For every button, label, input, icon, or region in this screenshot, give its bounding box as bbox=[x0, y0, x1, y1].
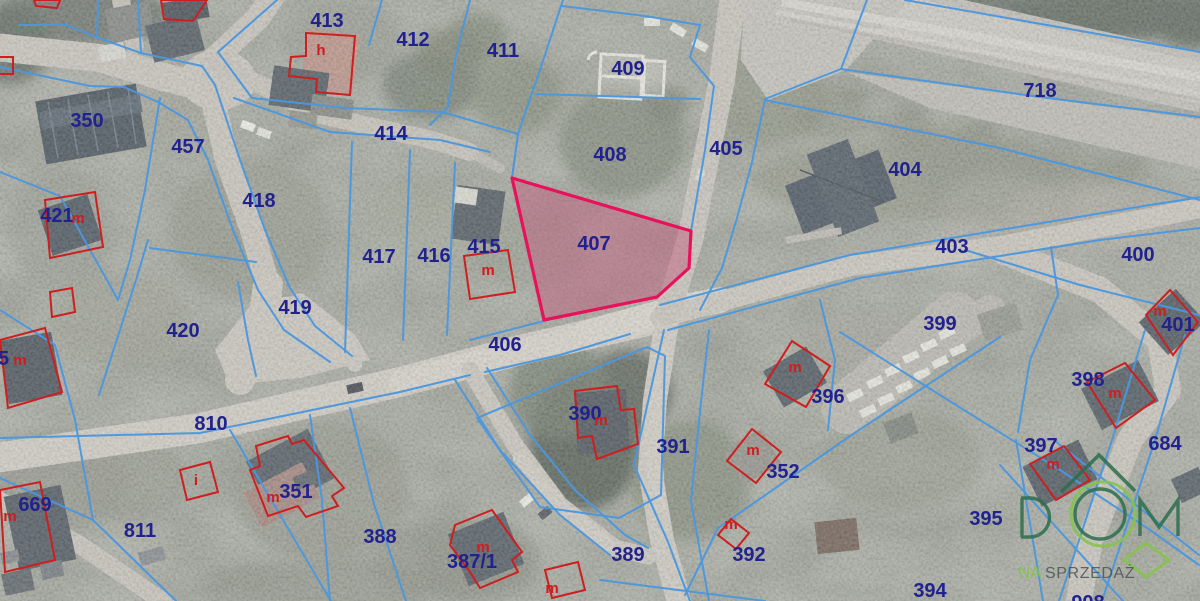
svg-text:810: 810 bbox=[194, 413, 227, 435]
svg-text:m: m bbox=[1108, 385, 1121, 402]
svg-text:389: 389 bbox=[611, 544, 644, 566]
svg-text:m: m bbox=[1046, 456, 1059, 473]
svg-text:398: 398 bbox=[1071, 369, 1104, 391]
svg-text:NA: NA bbox=[1018, 563, 1042, 582]
svg-text:m: m bbox=[746, 442, 759, 459]
svg-text:h: h bbox=[316, 42, 325, 59]
svg-text:669: 669 bbox=[18, 494, 51, 516]
svg-text:352: 352 bbox=[766, 461, 799, 483]
svg-text:413: 413 bbox=[310, 10, 343, 32]
svg-text:m: m bbox=[1153, 303, 1166, 320]
svg-text:391: 391 bbox=[656, 436, 689, 458]
svg-text:419: 419 bbox=[278, 297, 311, 319]
svg-text:396: 396 bbox=[811, 386, 844, 408]
svg-text:m: m bbox=[3, 508, 16, 525]
svg-text:400: 400 bbox=[1121, 244, 1154, 266]
svg-text:908: 908 bbox=[1071, 592, 1104, 601]
svg-text:m: m bbox=[266, 489, 279, 506]
svg-text:m: m bbox=[788, 359, 801, 376]
svg-text:m: m bbox=[594, 412, 607, 429]
svg-text:420: 420 bbox=[166, 320, 199, 342]
svg-text:457: 457 bbox=[171, 136, 204, 158]
svg-text:351: 351 bbox=[279, 481, 312, 503]
svg-text:811: 811 bbox=[124, 520, 156, 542]
svg-text:421: 421 bbox=[40, 205, 73, 227]
svg-text:392: 392 bbox=[732, 544, 765, 566]
svg-text:m: m bbox=[71, 210, 84, 227]
svg-text:SPRZEDAŻ: SPRZEDAŻ bbox=[1045, 563, 1135, 582]
svg-text:i: i bbox=[194, 472, 198, 489]
svg-text:684: 684 bbox=[1148, 433, 1182, 455]
svg-text:718: 718 bbox=[1023, 80, 1056, 102]
svg-text:m: m bbox=[476, 539, 489, 556]
svg-text:399: 399 bbox=[923, 313, 956, 335]
svg-text:416: 416 bbox=[417, 245, 450, 267]
svg-text:417: 417 bbox=[362, 246, 395, 268]
svg-text:395: 395 bbox=[969, 508, 1002, 530]
svg-text:403: 403 bbox=[935, 236, 968, 258]
svg-text:75: 75 bbox=[0, 348, 9, 370]
svg-text:m: m bbox=[481, 262, 494, 279]
svg-text:404: 404 bbox=[888, 159, 922, 181]
svg-text:418: 418 bbox=[242, 190, 275, 212]
svg-text:394: 394 bbox=[913, 580, 947, 601]
svg-text:405: 405 bbox=[709, 138, 742, 160]
svg-text:397: 397 bbox=[1024, 435, 1057, 457]
svg-text:411: 411 bbox=[487, 40, 519, 62]
svg-text:m: m bbox=[13, 352, 26, 369]
svg-text:408: 408 bbox=[593, 144, 626, 166]
svg-text:415: 415 bbox=[467, 236, 500, 258]
svg-text:350: 350 bbox=[70, 110, 103, 132]
svg-text:m: m bbox=[724, 516, 737, 533]
svg-text:409: 409 bbox=[611, 58, 644, 80]
svg-text:412: 412 bbox=[396, 29, 429, 51]
svg-text:407: 407 bbox=[577, 233, 610, 255]
svg-text:414: 414 bbox=[374, 123, 408, 145]
svg-text:m: m bbox=[545, 580, 558, 597]
svg-text:406: 406 bbox=[488, 334, 521, 356]
svg-text:388: 388 bbox=[363, 526, 396, 548]
